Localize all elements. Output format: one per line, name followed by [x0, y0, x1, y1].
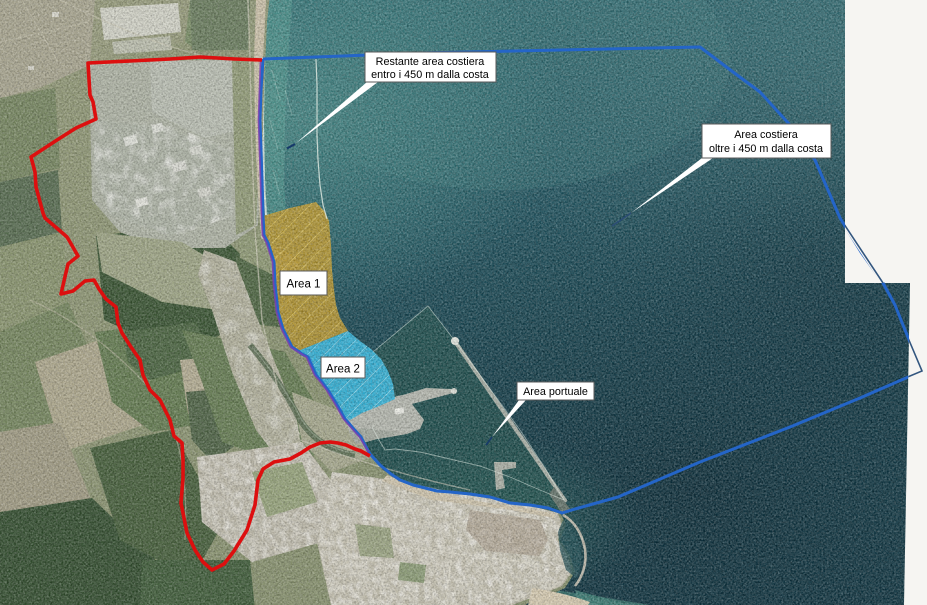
svg-text:Area portuale: Area portuale: [523, 386, 588, 398]
svg-text:oltre i 450 m dalla costa: oltre i 450 m dalla costa: [709, 143, 823, 155]
svg-text:Area 2: Area 2: [326, 364, 360, 376]
svg-text:Area costiera: Area costiera: [734, 129, 798, 141]
svg-text:entro i 450 m dalla costa: entro i 450 m dalla costa: [371, 69, 489, 81]
svg-text:Restante area costiera: Restante area costiera: [376, 56, 485, 68]
svg-text:Area 1: Area 1: [287, 279, 321, 291]
